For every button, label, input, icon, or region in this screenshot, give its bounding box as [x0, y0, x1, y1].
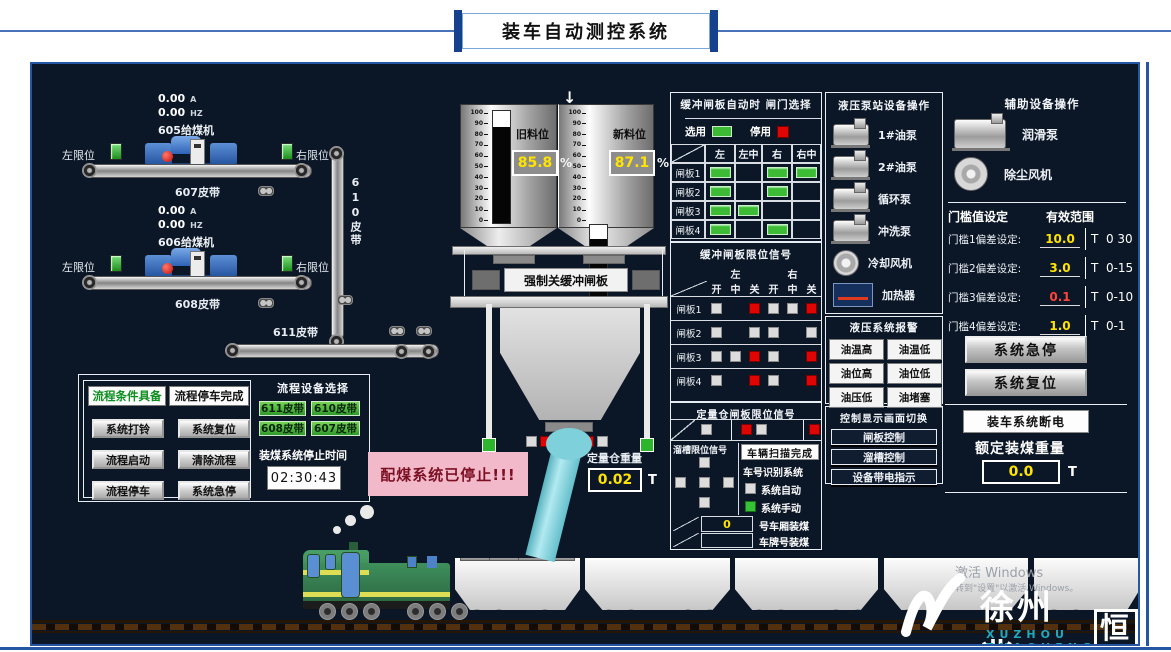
gate-selected-indicator — [710, 167, 731, 178]
aux-item[interactable]: 除尘风机 — [954, 154, 1134, 194]
limit-signal-cell — [726, 368, 745, 392]
new-level-value: 87.1 — [609, 150, 655, 176]
scale-tick: 20 — [462, 196, 488, 202]
limit-signal-cell — [764, 296, 783, 320]
pump-label: 1#油泵 — [878, 127, 917, 143]
alarm-indicator: 油温高 — [829, 339, 884, 360]
gate-select-cell[interactable] — [792, 220, 821, 239]
threshold-row: 门槛1偏差设定:10.0T 0 30 — [948, 228, 1138, 250]
wheel-bogie — [470, 607, 506, 621]
new-level-unit: % — [657, 156, 669, 170]
screen-switch-button[interactable]: 设备带电指示 — [831, 469, 937, 485]
hydraulic-alarm-panel: 液压系统报警 油温高油温低油位高油位低油压低油堵塞 — [825, 316, 943, 404]
legend-off-label: 停用 — [750, 124, 771, 139]
gate-select-cell[interactable] — [735, 163, 762, 182]
hopper-car — [455, 558, 580, 610]
buffer-limit-panel: 缓冲闸板限位信号 左右开中关开中关闸板1闸板2闸板3闸板4 — [670, 242, 822, 402]
gate-block — [472, 270, 500, 290]
left-limit-led — [110, 143, 122, 160]
limit-signal-square — [711, 351, 722, 362]
limit-signal-square — [711, 303, 722, 314]
outlet-limit-square — [597, 436, 608, 447]
manual-mode-label: 系统手动 — [761, 500, 801, 515]
bin-limit-square — [809, 424, 820, 435]
limit-group-left: 左 — [707, 266, 764, 281]
threshold-label: 门槛1偏差设定: — [948, 232, 1040, 247]
limit-signal-cell — [764, 344, 783, 368]
belt-select-button[interactable]: 608皮带 — [259, 421, 306, 436]
limit-signal-square — [749, 375, 760, 386]
limit-signal-cell — [745, 344, 764, 368]
bin-limit-square — [741, 424, 752, 435]
pump-icon — [833, 124, 869, 146]
threshold-range-title: 有效范围 — [1046, 208, 1094, 225]
gate-selected-indicator — [710, 224, 731, 235]
weigh-bin-weight-value: 0.02 — [588, 468, 642, 492]
belt-608-label: 608皮带 — [175, 296, 220, 312]
limit-signal-square — [711, 375, 722, 386]
weigh-bin-right-led — [640, 438, 654, 452]
threshold-value-input[interactable]: 0.1 — [1040, 288, 1080, 306]
belt-611-label: 611皮带 — [273, 324, 318, 340]
screen-switch-button[interactable]: 溜槽控制 — [831, 449, 937, 465]
process-button[interactable]: 清除流程 — [178, 450, 250, 469]
support-line — [662, 250, 663, 302]
limit-signal-square — [768, 375, 779, 386]
gate-select-cell[interactable] — [705, 163, 735, 182]
pump-icon — [833, 156, 869, 178]
gate-selected-indicator — [738, 205, 759, 216]
limit-signal-square — [768, 327, 779, 338]
stop-time-value: 02:30:43 — [267, 466, 341, 490]
threshold-separator — [1085, 257, 1086, 279]
limit-signal-square — [768, 303, 779, 314]
belt-607-label: 607皮带 — [175, 184, 220, 200]
gate-select-cell[interactable] — [705, 182, 735, 201]
car-number-label: 号车厢装煤 — [759, 518, 809, 533]
pump-list: 1#油泵2#油泵循环泵冲洗泵冷却风机加热器 — [833, 119, 942, 311]
limit-signal-cell — [707, 296, 726, 320]
loco-stripe — [303, 592, 450, 597]
left-limit-led — [110, 255, 122, 272]
limit-signal-cell — [764, 368, 783, 392]
pump-item[interactable]: 冷却风机 — [833, 247, 942, 279]
gate-column-header: 右中 — [792, 144, 821, 163]
loco-vent — [427, 556, 437, 568]
process-button[interactable]: 流程启动 — [92, 450, 164, 469]
scale-tick: 30 — [462, 186, 488, 192]
pump-icon — [833, 220, 869, 242]
car-lid — [460, 552, 575, 561]
process-buttons-box: 流程条件具备 流程停车完成 系统打铃系统复位流程启动清除流程流程停车系统急停 — [83, 380, 251, 498]
threshold-row: 门槛4偏差设定:1.0T 0-1 — [948, 315, 1138, 337]
belt-pulley — [225, 343, 240, 358]
limit-column-header: 关 — [745, 281, 764, 296]
gate-select-cell[interactable] — [705, 220, 735, 239]
diagonal-cell — [671, 420, 695, 440]
chute-limit-square — [723, 477, 734, 488]
gate-selected-indicator — [767, 167, 788, 178]
alarm-indicator: 油位低 — [887, 363, 942, 384]
plate-value-box — [701, 533, 753, 548]
weigh-bin-weight-label: 定量仓重量 — [587, 450, 642, 466]
smoke — [345, 515, 356, 526]
gate-select-cell[interactable] — [762, 220, 792, 239]
support-line — [464, 250, 465, 302]
limit-signal-cell — [707, 320, 726, 344]
scale-tick: 40 — [462, 175, 488, 181]
process-button[interactable]: 系统急停 — [178, 481, 250, 500]
belt-select-button[interactable]: 611皮带 — [259, 401, 306, 416]
gate-select-cell[interactable] — [735, 201, 762, 220]
chute-limit-square — [699, 497, 710, 508]
belt-pulley — [421, 344, 436, 359]
belt-select-button[interactable]: 607皮带 — [311, 421, 360, 436]
threshold-range: T 0-1 — [1091, 319, 1126, 333]
limit-signal-cell — [764, 320, 783, 344]
equipment-select-title: 流程设备选择 — [259, 380, 367, 396]
fan-icon — [833, 250, 859, 276]
threshold-range: T 0 30 — [1091, 232, 1133, 246]
limit-signal-cell — [726, 320, 745, 344]
belt-pulley — [82, 275, 97, 290]
hopper-platform — [452, 246, 666, 255]
feeder-605-readout: 0.00A 0.00HZ 605给煤机 — [158, 92, 214, 138]
limit-signal-cell — [802, 344, 821, 368]
car-number-value: 0 — [701, 516, 753, 532]
weigh-bin-leg — [644, 304, 650, 438]
system-estop-button[interactable]: 系统急停 — [965, 336, 1087, 363]
locomotive — [303, 542, 450, 622]
belt-pulley — [294, 275, 309, 290]
legend-on-swatch — [712, 126, 732, 137]
legend-on-label: 选用 — [685, 124, 706, 139]
alarm-indicator: 油堵塞 — [887, 387, 942, 408]
screen-switch-panel: 控制显示画面切换 闸板控制溜槽控制设备带电指示 — [825, 406, 943, 484]
limit-signal-cell — [783, 296, 802, 320]
scale-tick: 10 — [462, 207, 488, 213]
bin-limit-squares — [671, 419, 821, 441]
smoke — [333, 526, 341, 534]
pump-label: 冷却风机 — [868, 255, 912, 271]
belt-610[interactable] — [331, 152, 344, 340]
threshold-row: 门槛2偏差设定:3.0T 0-15 — [948, 257, 1138, 279]
process-button[interactable]: 系统打铃 — [92, 419, 164, 438]
system-reset-button[interactable]: 系统复位 — [965, 369, 1087, 396]
rated-weight-value[interactable]: 0.0 — [982, 460, 1060, 484]
gate-select-title: 缓冲闸板自动时 闸门选择 — [671, 97, 821, 112]
plate-label: 车牌号装煤 — [759, 534, 809, 549]
aux-title: 辅助设备操作 — [987, 96, 1097, 112]
limit-table-corner — [671, 281, 707, 296]
limit-row-label: 闸板1 — [671, 296, 707, 320]
divider — [945, 404, 1127, 405]
level-scale: 1009080706050403020100 — [462, 110, 488, 224]
belt-pulley — [294, 163, 309, 178]
aux-label: 润滑泵 — [1022, 126, 1058, 143]
company-logo-en: XUZHOU ZHAOHENG — [986, 628, 1138, 646]
limit-signal-square — [730, 351, 741, 362]
weigh-bin-body — [500, 308, 640, 420]
hmi-canvas: 0.00A 0.00HZ 605给煤机 左限位 右限位 607皮带 0.00A … — [30, 62, 1140, 646]
scale-tick: 80 — [560, 132, 586, 138]
chute-head — [546, 428, 592, 460]
gate-selected-indicator — [710, 186, 731, 197]
limit-signal-cell — [745, 320, 764, 344]
gate-row-label: 闸板1 — [671, 163, 705, 182]
threshold-title: 门槛值设定 — [948, 208, 1008, 225]
scale-tick: 50 — [462, 164, 488, 170]
new-level-label: 新料位 — [613, 126, 646, 142]
gate-selected-indicator — [710, 205, 731, 216]
feeder-status-light — [162, 151, 173, 162]
aux-item[interactable]: 润滑泵 — [954, 114, 1134, 154]
belt-roller-icon — [258, 186, 274, 196]
status-process-ready: 流程条件具备 — [88, 386, 166, 406]
gate-block — [632, 270, 660, 290]
scale-tick: 100 — [462, 110, 488, 116]
aux-label: 除尘风机 — [1004, 166, 1052, 183]
limit-row-label: 闸板4 — [671, 368, 707, 392]
gate-select-cell[interactable] — [735, 182, 762, 201]
gate-selected-indicator — [767, 186, 788, 197]
limit-signal-square — [711, 327, 722, 338]
limit-group-right: 右 — [764, 266, 821, 281]
limit-signal-cell — [726, 296, 745, 320]
force-close-buffer-gate-button[interactable]: 强制关缓冲闸板 — [504, 268, 628, 292]
gate-row-label: 闸板4 — [671, 220, 705, 239]
manual-mode-indicator[interactable] — [745, 501, 756, 512]
threshold-separator — [1085, 315, 1086, 337]
right-limit-led — [281, 255, 293, 272]
scale-tick: 40 — [560, 175, 586, 181]
loading-power-off-button[interactable]: 装车系统断电 — [963, 410, 1089, 433]
divider — [948, 202, 1126, 203]
belt-select-grid: 611皮带610皮带608皮带607皮带 — [259, 401, 360, 436]
gate-select-cell[interactable] — [792, 163, 821, 182]
gate-select-cell[interactable] — [762, 201, 792, 220]
limit-signal-square — [806, 327, 817, 338]
weigh-bin-left-led — [482, 438, 496, 452]
threshold-label: 门槛4偏差设定: — [948, 319, 1040, 334]
gate-row-label: 闸板3 — [671, 201, 705, 220]
threshold-rows: 门槛1偏差设定:10.0T 0 30门槛2偏差设定:3.0T 0-15门槛3偏差… — [948, 228, 1138, 344]
gate-select-cell[interactable] — [792, 182, 821, 201]
scale-tick: 90 — [560, 121, 586, 127]
limit-signal-square — [806, 375, 817, 386]
limit-signal-cell — [707, 368, 726, 392]
gate-select-table: 左左中右右中闸板1闸板2闸板3闸板4 — [671, 144, 821, 239]
chute-limit-title: 溜槽限位信号 — [673, 443, 738, 456]
rated-weight-unit: T — [1068, 465, 1077, 480]
stop-time-label: 装煤系统停止时间 — [259, 447, 347, 463]
chute-limit-square — [675, 477, 686, 488]
scale-tick: 30 — [560, 186, 586, 192]
gate-select-cell[interactable] — [792, 201, 821, 220]
buffer-limit-title: 缓冲闸板限位信号 — [671, 247, 821, 262]
alarm-indicator: 油压低 — [829, 387, 884, 408]
pump-label: 循环泵 — [878, 191, 911, 207]
limit-row-label: 闸板3 — [671, 344, 707, 368]
right-limit-label: 右限位 — [296, 147, 329, 163]
buffer-limit-table: 左右开中关开中关闸板1闸板2闸板3闸板4 — [671, 266, 821, 392]
outlet-limit-square — [526, 436, 537, 447]
threshold-separator — [1085, 286, 1086, 308]
pump-item[interactable]: 加热器 — [833, 279, 942, 311]
pump-station-title: 液压泵站设备操作 — [826, 98, 942, 113]
belt-pulley — [394, 344, 409, 359]
divider — [945, 492, 1127, 493]
right-rule — [1146, 62, 1149, 646]
belt-roller-icon — [337, 295, 353, 305]
limit-column-header: 开 — [764, 281, 783, 296]
pump-icon — [954, 119, 1006, 149]
screen-switch-list: 闸板控制溜槽控制设备带电指示 — [831, 429, 937, 485]
belt-select-button[interactable]: 610皮带 — [311, 401, 360, 416]
feeder-status-light — [162, 263, 173, 274]
wheel-bogie — [752, 607, 788, 621]
gate-select-cell[interactable] — [705, 201, 735, 220]
feeder-current: 0.00A — [158, 204, 214, 218]
gate-selected-indicator — [796, 167, 817, 178]
limit-signal-cell — [707, 344, 726, 368]
weigh-bin-weight-unit: T — [648, 473, 657, 488]
pump-item[interactable]: 冲洗泵 — [833, 215, 942, 247]
hydraulic-alarm-title: 液压系统报警 — [826, 320, 942, 335]
alarm-indicator: 油位高 — [829, 363, 884, 384]
right-limit-label: 右限位 — [296, 259, 329, 275]
belt-pulley — [82, 163, 97, 178]
scale-tick: 20 — [560, 196, 586, 202]
feeder-frequency: 0.00HZ — [158, 218, 214, 232]
footer-rule — [0, 647, 1171, 650]
rated-weight-label: 额定装煤重量 — [975, 438, 1065, 458]
belt-roller-icon — [389, 326, 405, 336]
weigh-bin-leg — [486, 304, 492, 438]
belt-roller-icon — [258, 298, 274, 308]
scale-tick: 0 — [560, 218, 586, 224]
threshold-value-input[interactable]: 1.0 — [1040, 317, 1080, 335]
scada-page: 装车自动测控系统 0.00A 0.00HZ 605给煤机 左限位 右限位 607… — [0, 0, 1171, 652]
scale-tick: 100 — [560, 110, 586, 116]
gate-select-cell[interactable] — [762, 163, 792, 182]
limit-signal-cell — [745, 296, 764, 320]
right-limit-led — [281, 143, 293, 160]
hopper-car — [585, 558, 730, 610]
loco-window — [325, 554, 336, 570]
hopper-car — [735, 558, 878, 610]
pump-label: 加热器 — [882, 287, 915, 303]
feeder-frequency: 0.00HZ — [158, 106, 214, 120]
auto-mode-indicator[interactable] — [745, 483, 756, 494]
gate-select-cell[interactable] — [735, 220, 762, 239]
process-panel: 流程条件具备 流程停车完成 系统打铃系统复位流程启动清除流程流程停车系统急停 流… — [78, 374, 370, 502]
limit-blank — [671, 266, 707, 281]
pump-icon — [833, 188, 869, 210]
limit-column-header: 开 — [707, 281, 726, 296]
limit-signal-square — [749, 327, 760, 338]
gate-selected-indicator — [767, 224, 788, 235]
process-button[interactable]: 流程停车 — [92, 481, 164, 500]
belt-607[interactable] — [87, 164, 312, 178]
scale-tick: 70 — [560, 142, 586, 148]
threshold-row: 门槛3偏差设定:0.1T 0-10 — [948, 286, 1138, 308]
loco-vent — [407, 556, 417, 568]
loco-window — [307, 554, 320, 578]
limit-signal-square — [749, 303, 760, 314]
gate-column-header: 右 — [762, 144, 792, 163]
limit-signal-cell — [802, 296, 821, 320]
limit-column-header: 中 — [783, 281, 802, 296]
legend-off-swatch — [777, 126, 789, 138]
gate-row-label: 闸板2 — [671, 182, 705, 201]
hydraulic-alarm-grid: 油温高油温低油位高油位低油压低油堵塞 — [829, 339, 942, 408]
scale-tick: 60 — [462, 153, 488, 159]
scale-tick: 10 — [560, 207, 586, 213]
pump-station-panel: 液压泵站设备操作 1#油泵2#油泵循环泵冲洗泵冷却风机加热器 — [825, 92, 943, 314]
pump-item[interactable]: 循环泵 — [833, 183, 942, 215]
old-level-value: 85.8 — [512, 150, 558, 176]
car-id-system-label: 车号识别系统 — [743, 464, 803, 479]
pump-item[interactable]: 1#油泵 — [833, 119, 942, 151]
limit-signal-square — [806, 303, 817, 314]
scale-tick: 70 — [462, 142, 488, 148]
smoke — [360, 505, 374, 519]
threshold-label: 门槛2偏差设定: — [948, 261, 1040, 276]
gate-table-corner — [671, 144, 705, 163]
fan-icon — [954, 157, 988, 191]
limit-signal-square — [768, 351, 779, 362]
diagonal-cell — [673, 517, 699, 531]
wheel-bogie — [829, 607, 865, 621]
process-button[interactable]: 系统复位 — [178, 419, 250, 438]
limit-signal-square — [749, 351, 760, 362]
threshold-value-input[interactable]: 3.0 — [1040, 259, 1080, 277]
weigh-bin-top — [450, 296, 668, 308]
title-left-bar — [454, 10, 462, 52]
limit-signal-cell — [802, 320, 821, 344]
belt-608[interactable] — [87, 276, 312, 290]
company-logo-icon — [898, 570, 984, 645]
limit-signal-cell — [783, 344, 802, 368]
gate-column-header: 左中 — [735, 144, 762, 163]
old-level-unit: % — [560, 156, 572, 170]
pump-item[interactable]: 2#油泵 — [833, 151, 942, 183]
page-title: 装车自动测控系统 — [462, 13, 710, 49]
loco-door — [341, 552, 360, 598]
aux-list: 润滑泵除尘风机 — [954, 114, 1134, 194]
feeder-606-readout: 0.00A 0.00HZ 606给煤机 — [158, 204, 214, 250]
limit-column-header: 关 — [802, 281, 821, 296]
belt-pulley — [329, 146, 344, 161]
wheel-bogie — [681, 607, 717, 621]
auto-mode-label: 系统自动 — [761, 482, 801, 497]
vehicle-scan-done-button[interactable]: 车辆扫描完成 — [741, 444, 819, 460]
system-alarm-banner: 配煤系统已停止!!! — [368, 452, 528, 496]
limit-signal-cell — [783, 368, 802, 392]
gate-select-cell[interactable] — [762, 182, 792, 201]
old-level-bar — [492, 110, 511, 224]
screen-switch-button[interactable]: 闸板控制 — [831, 429, 937, 445]
process-button-grid: 系统打铃系统复位流程启动清除流程流程停车系统急停 — [92, 419, 250, 500]
left-limit-label: 左限位 — [62, 259, 95, 275]
threshold-range: T 0-15 — [1091, 261, 1133, 275]
scale-tick: 90 — [462, 121, 488, 127]
threshold-value-input[interactable]: 10.0 — [1040, 230, 1080, 248]
hopper-foot — [583, 255, 625, 264]
limit-signal-cell — [783, 320, 802, 344]
belt-roller-icon — [416, 326, 432, 336]
